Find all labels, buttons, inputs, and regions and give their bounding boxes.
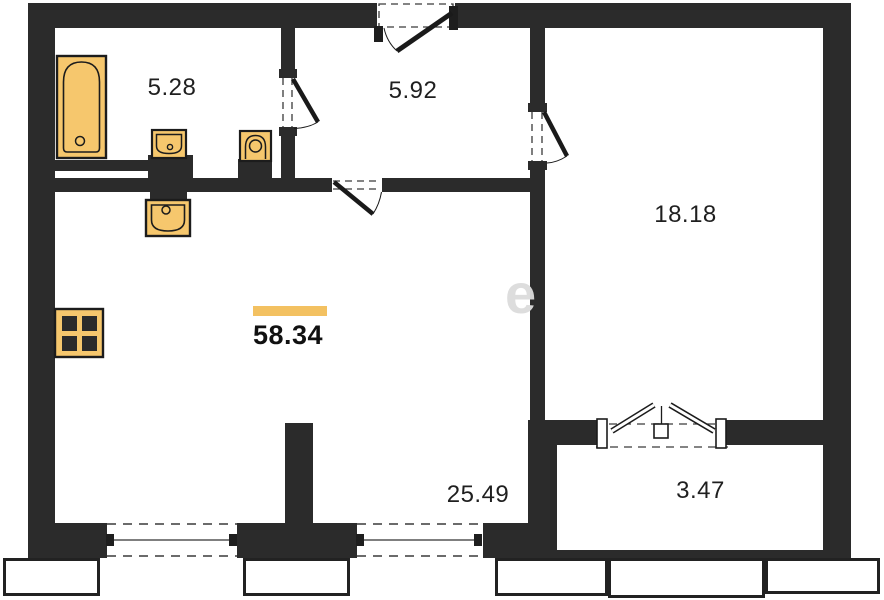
living-room-door bbox=[333, 181, 382, 214]
kitchen-sink-icon bbox=[146, 190, 190, 236]
bedroom-door bbox=[532, 112, 567, 163]
balcony-area-label: 3.47 bbox=[663, 477, 738, 505]
window-2 bbox=[356, 524, 483, 556]
bedroom-area-label: 18.18 bbox=[643, 201, 728, 229]
total-area-value: 58.34 bbox=[253, 320, 327, 351]
entrance-door bbox=[374, 4, 458, 51]
balcony-french-door bbox=[596, 405, 728, 448]
floor-plan: 5.28 5.92 18.18 58.34 25.49 3.47 e bbox=[0, 0, 884, 600]
bathtub-icon bbox=[57, 56, 106, 158]
bathroom-area-label: 5.28 bbox=[137, 74, 207, 102]
total-area-label: 58.34 bbox=[253, 306, 327, 351]
bathroom-door bbox=[283, 78, 318, 129]
total-area-highlight-bar bbox=[253, 306, 327, 316]
window-1 bbox=[106, 524, 237, 556]
hallway-area-label: 5.92 bbox=[378, 77, 448, 105]
stove-icon bbox=[55, 309, 103, 357]
toilet-icon bbox=[240, 131, 271, 161]
bathroom-sink-icon bbox=[152, 130, 186, 158]
living-area-label: 25.49 bbox=[438, 481, 518, 509]
